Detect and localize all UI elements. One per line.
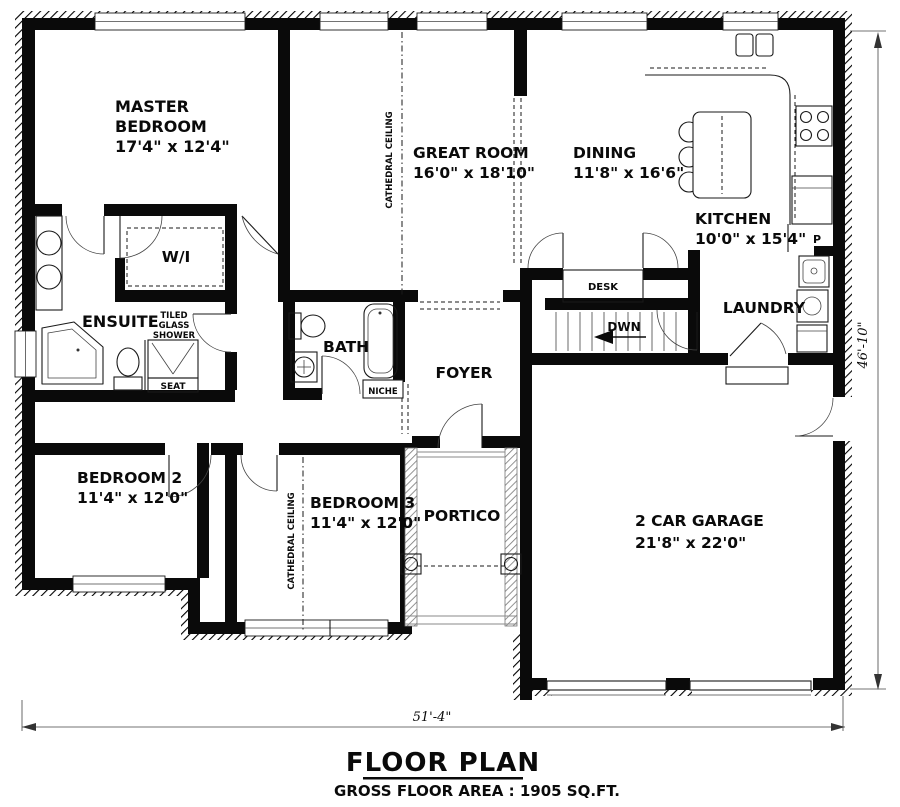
window-great-room-1: [320, 13, 388, 30]
window-dining: [562, 13, 647, 30]
window-kitchen: [723, 13, 778, 30]
door-master-to-ensuite-vanity: [66, 216, 104, 254]
garage-details: [547, 367, 811, 695]
label-dining-dims: 11'8" x 16'6": [573, 164, 684, 182]
label-bedroom2: BEDROOM 2: [77, 469, 182, 487]
door-dining-hall-right: [643, 233, 678, 268]
drawing-subtitle: GROSS FLOOR AREA : 1905 SQ.FT.: [334, 782, 620, 800]
label-shower-2: GLASS: [159, 321, 190, 331]
title-block: FLOOR PLAN GROSS FLOOR AREA : 1905 SQ.FT…: [334, 748, 620, 800]
label-cathedral-ceiling-great-room: CATHEDRAL CEILING: [385, 111, 395, 208]
ensuite-sink-1: [37, 231, 61, 255]
door-bedroom3: [241, 455, 277, 491]
label-bedroom3-dims: 11'4" x 12'0": [310, 514, 421, 532]
label-master-bedroom-2: BEDROOM: [115, 117, 207, 136]
label-master-bedroom-dims: 17'4" x 12'4": [115, 137, 230, 156]
title-underline: [363, 777, 523, 780]
label-dining: DINING: [573, 144, 636, 162]
garage-side-door-opening: [831, 397, 853, 441]
door-dining-hall-left: [528, 233, 563, 268]
label-kitchen: KITCHEN: [695, 210, 771, 228]
label-garage: 2 CAR GARAGE: [635, 512, 764, 530]
dimension-depth: 46'-10": [856, 321, 871, 369]
label-desk: DESK: [588, 282, 619, 293]
garage-door-right: [690, 681, 811, 695]
ensuite-corner-tub: [42, 322, 103, 384]
laundry-dryer: [797, 325, 827, 352]
kitchen-sink: [736, 34, 773, 56]
label-bedroom2-dims: 11'4" x 12'0": [77, 489, 188, 507]
label-walkin-closet: W/I: [162, 248, 191, 266]
label-pantry: P: [813, 233, 821, 246]
label-shower-3: SHOWER: [153, 331, 196, 341]
floor-plan-drawing: MASTER BEDROOM 17'4" x 12'4" GREAT ROOM …: [0, 0, 900, 807]
window-master: [95, 13, 245, 30]
door-ensuite: [193, 314, 231, 352]
label-niche: NICHE: [368, 387, 398, 397]
label-great-room-dims: 16'0" x 18'10": [413, 164, 535, 182]
label-garage-dims: 21'8" x 22'0": [635, 534, 746, 552]
kitchen-fridge: [792, 176, 832, 224]
kitchen-island: [679, 112, 751, 198]
label-kitchen-dims: 10'0" x 15'4": [695, 230, 806, 248]
label-portico: PORTICO: [424, 507, 501, 525]
label-cathedral-ceiling-bedroom3: CATHEDRAL CEILING: [287, 492, 297, 589]
window-bedroom2: [73, 576, 165, 592]
laundry-sink: [799, 256, 829, 287]
floor-plan-page: MASTER BEDROOM 17'4" x 12'4" GREAT ROOM …: [0, 0, 900, 807]
window-great-room-2: [417, 13, 487, 30]
kitchen-stove: [796, 106, 832, 146]
label-bedroom3: BEDROOM 3: [310, 494, 415, 512]
label-seat: SEAT: [160, 382, 186, 392]
garage-stoop: [726, 367, 788, 384]
label-foyer: FOYER: [436, 364, 493, 382]
label-master-bedroom-1: MASTER: [115, 97, 189, 116]
label-bath: BATH: [323, 338, 369, 356]
ensuite-fixtures: [36, 216, 198, 392]
label-stairs-down: DWN: [607, 320, 640, 334]
door-bath: [322, 356, 360, 394]
ensuite-toilet: [114, 348, 142, 390]
door-master: [242, 216, 278, 254]
label-ensuite: ENSUITE: [82, 312, 159, 331]
garage-door-left: [547, 681, 666, 695]
label-laundry: LAUNDRY: [723, 299, 806, 317]
portico-structure: [401, 448, 521, 626]
window-ensuite: [15, 331, 36, 377]
door-laundry-to-garage: [730, 323, 786, 356]
ensuite-sink-2: [37, 265, 61, 289]
door-walkin-closet: [120, 216, 162, 258]
door-garage-side: [795, 398, 833, 436]
drawing-title: FLOOR PLAN: [346, 748, 540, 778]
dimension-width: 51'-4": [413, 710, 452, 725]
label-shower-1: TILED: [160, 311, 187, 321]
window-bedroom3: [245, 620, 388, 636]
label-great-room: GREAT ROOM: [413, 144, 529, 162]
door-front-entry: [438, 404, 482, 448]
ensuite-vanity: [36, 216, 62, 310]
